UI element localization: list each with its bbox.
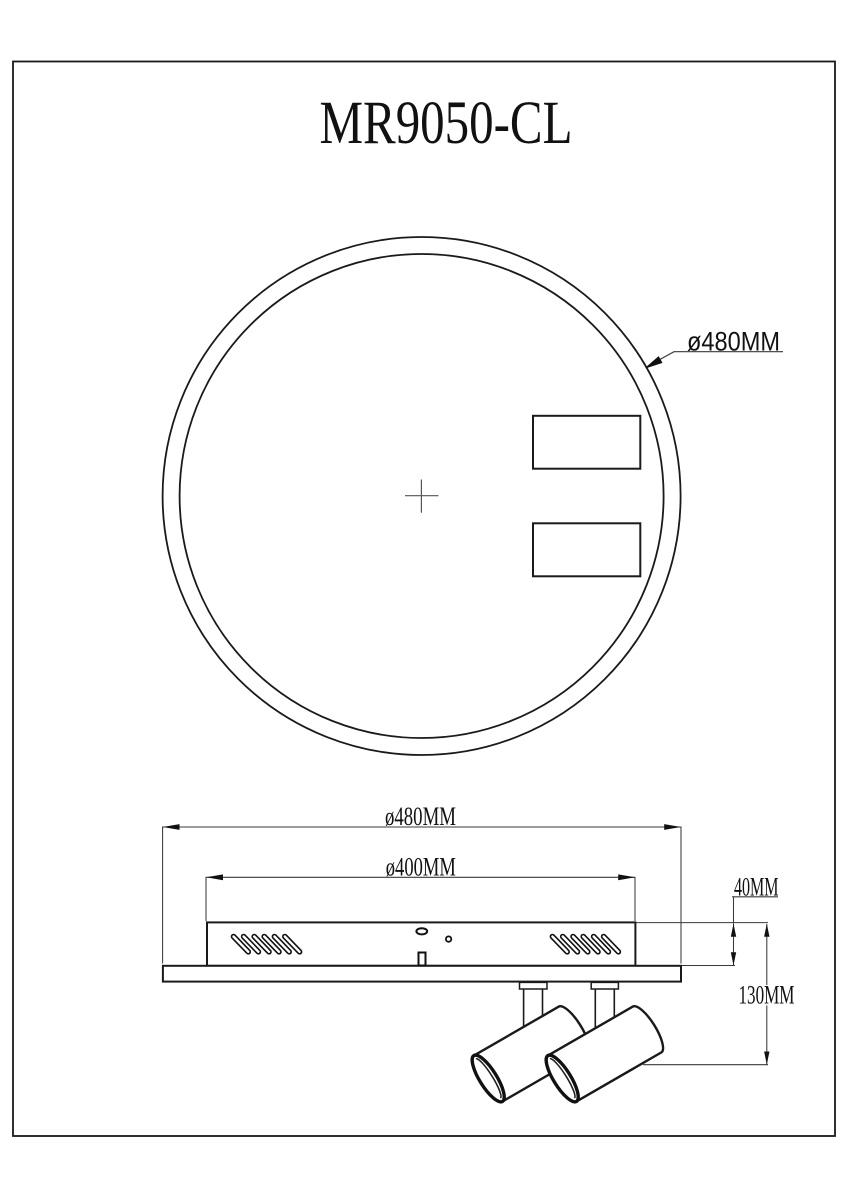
svg-text:40MM: 40MM xyxy=(734,873,779,902)
svg-text:130MM: 130MM xyxy=(739,981,795,1010)
svg-text:ø480MM: ø480MM xyxy=(687,327,780,357)
svg-text:MR9050-CL: MR9050-CL xyxy=(320,90,573,157)
svg-text:ø480MM: ø480MM xyxy=(385,802,456,831)
svg-text:ø400MM: ø400MM xyxy=(386,852,456,881)
